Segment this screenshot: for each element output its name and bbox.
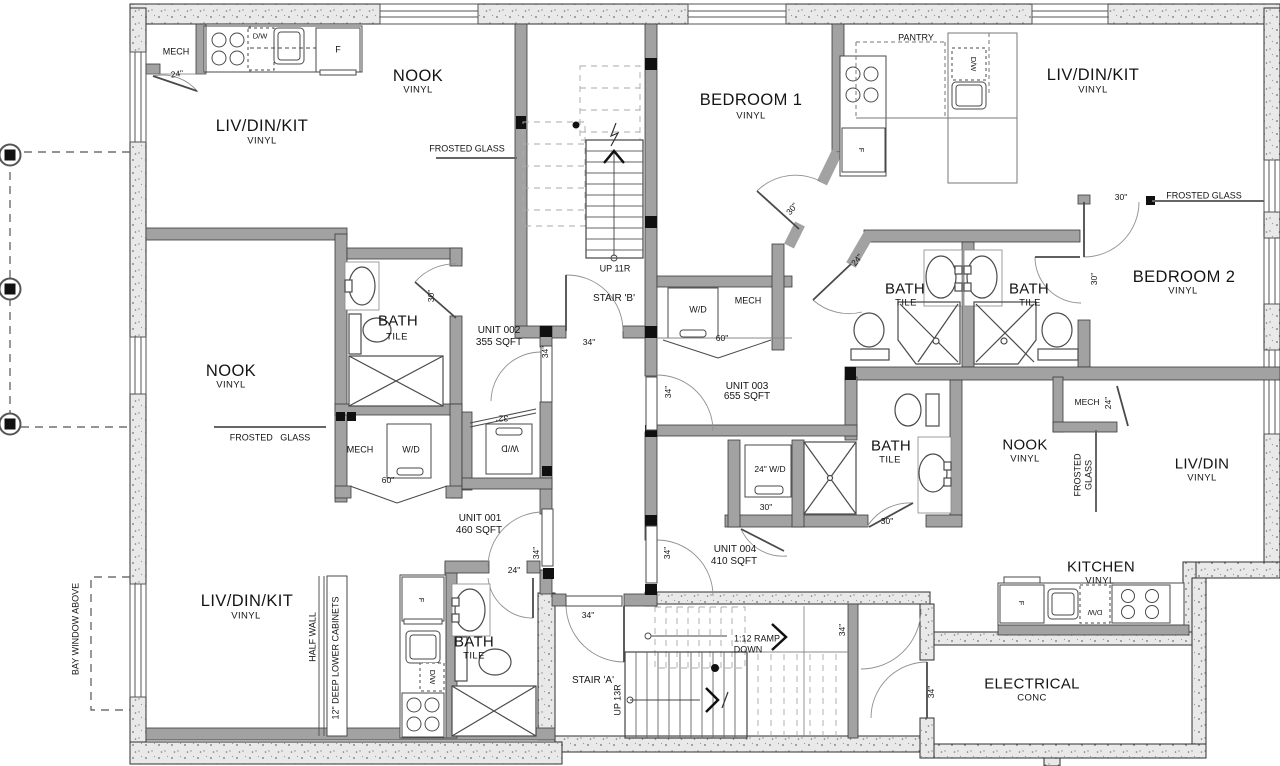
fridge-label-sw: F xyxy=(417,598,425,603)
note-frosted-glass-ne: FROSTED GLASS xyxy=(1166,192,1242,201)
dw-label-sw: D/W xyxy=(428,670,436,685)
room-label-nook-n: NOOK xyxy=(393,68,443,85)
room-finish-bath-002: TILE xyxy=(386,332,408,342)
note-frosted-glass-n: FROSTED GLASS xyxy=(429,145,505,154)
room-finish-bath-004: TILE xyxy=(879,455,901,465)
stair-b-label: STAIR 'B' xyxy=(593,294,635,304)
dim-34-unit003: 34" xyxy=(664,386,673,398)
dim-30-bedroom2: 30" xyxy=(1115,193,1127,202)
dim-30-wd24: 30" xyxy=(760,503,772,512)
dim-34-electrical: 34" xyxy=(927,686,936,698)
dim-32-closet: 32" xyxy=(496,414,508,423)
room-label-bath-002: BATH xyxy=(378,314,418,329)
room-label-bath-001: BATH xyxy=(454,635,494,650)
room-finish-bath-2: TILE xyxy=(1019,298,1041,308)
dim-30-bath002: 30" xyxy=(427,290,436,302)
dim-24-bath001: 24" xyxy=(508,566,520,575)
room-label-nook-w: NOOK xyxy=(206,363,256,380)
dim-34-unit002: 34" xyxy=(541,346,550,358)
mech-label-w: MECH xyxy=(347,446,374,455)
fridge-label-ne: F xyxy=(857,148,865,153)
dw-label-ne: D/W xyxy=(969,57,977,72)
room-label-bath-004: BATH xyxy=(871,439,911,454)
stair-a-ramp xyxy=(625,606,848,738)
room-label-livdin-e: LIV/DIN xyxy=(1175,457,1230,472)
dim-34-unit004: 34" xyxy=(663,547,672,559)
dim-34-stairb: 34" xyxy=(583,338,595,347)
dw-label-nw: D/W xyxy=(253,32,268,40)
unit-002-area: 355 SQFT xyxy=(476,338,522,348)
room-label-nook-e: NOOK xyxy=(1002,438,1047,453)
note-half-wall: HALF WALL xyxy=(309,612,318,662)
bay-window-markers xyxy=(0,145,130,711)
room-label-electrical: ELECTRICAL xyxy=(984,677,1080,692)
room-label-kitchen: KITCHEN xyxy=(1067,560,1135,575)
dim-24-mech-e: 24" xyxy=(1104,397,1113,409)
note-frosted-glass-w: FROSTED GLASS xyxy=(230,434,311,443)
dim-34-staira: 34" xyxy=(582,611,594,620)
ramp-label: 1:12 RAMP xyxy=(734,635,780,644)
unit-004-area: 410 SQFT xyxy=(711,557,757,567)
wd24-label: 24" W/D xyxy=(754,465,785,474)
room-finish-bedroom1: VINYL xyxy=(736,111,765,121)
note-frosted-vert: FROSTED xyxy=(1074,453,1083,496)
room-finish-bath-001: TILE xyxy=(463,651,485,661)
room-finish-bath-1: TILE xyxy=(895,298,917,308)
stair-b-run: UP 11R xyxy=(600,265,631,274)
wd-label-closet32: W/D xyxy=(501,444,519,453)
fridge-label-se: F xyxy=(1017,601,1025,606)
ramp-direction: DOWN xyxy=(734,646,763,655)
floor-plan-canvas: LIV/DIN/KIT VINYL NOOK VINYL BEDROOM 1 V… xyxy=(0,0,1280,766)
stair-a-label: STAIR 'A' xyxy=(572,676,614,686)
dim-60-closet-w: 60" xyxy=(382,476,394,485)
room-finish-nook-w: VINYL xyxy=(216,380,245,390)
floor-plan-drawing xyxy=(0,0,1280,766)
note-bay-window: BAY WINDOW ABOVE xyxy=(72,583,81,675)
dim-34-unit001: 34" xyxy=(532,547,541,559)
room-finish-livdinkit-nw: VINYL xyxy=(247,136,276,146)
fridge-label-nw: F xyxy=(335,46,341,55)
unit-002-name: UNIT 002 xyxy=(478,326,521,336)
unit-001-name: UNIT 001 xyxy=(459,514,502,524)
note-lower-cabinets: 12" DEEP LOWER CABINETS xyxy=(332,596,341,719)
room-label-livdinkit-sw: LIV/DIN/KIT xyxy=(201,593,293,610)
dim-30-bath2: 30" xyxy=(1090,273,1099,285)
dim-34-ramp: 34" xyxy=(838,624,847,636)
note-glass-vert: GLASS xyxy=(1085,460,1094,490)
mech-label-e: MECH xyxy=(1074,398,1099,407)
half-wall-lines xyxy=(319,576,324,736)
note-pantry: PANTRY xyxy=(898,34,934,43)
room-finish-nook-n: VINYL xyxy=(403,85,432,95)
room-finish-livdinkit-sw: VINYL xyxy=(231,611,260,621)
room-label-livdinkit-nw: LIV/DIN/KIT xyxy=(216,118,308,135)
mech-label-center: MECH xyxy=(735,297,762,306)
mech-label-nw: MECH xyxy=(163,48,190,57)
dim-24-mech-nw: 24" xyxy=(170,69,184,79)
room-label-bath-1: BATH xyxy=(885,282,925,297)
unit-001-area: 460 SQFT xyxy=(456,526,502,536)
room-finish-livdinkit-ne: VINYL xyxy=(1078,85,1107,95)
dim-60-closet-c: 60" xyxy=(716,334,728,343)
room-finish-bedroom2: VINYL xyxy=(1168,286,1197,296)
wd-label-center: W/D xyxy=(689,306,707,315)
dim-30-bath004: 30" xyxy=(881,517,893,526)
dw-label-se: D/W xyxy=(1088,608,1103,616)
room-finish-livdin-e: VINYL xyxy=(1187,473,1216,483)
room-label-livdinkit-ne: LIV/DIN/KIT xyxy=(1047,67,1139,84)
unit-004-name: UNIT 004 xyxy=(714,545,757,555)
unit-003-area: 655 SQFT xyxy=(724,392,770,402)
stair-b xyxy=(523,66,643,261)
room-label-bedroom2: BEDROOM 2 xyxy=(1133,269,1236,286)
room-finish-nook-e: VINYL xyxy=(1010,454,1039,464)
room-finish-electrical: CONC xyxy=(1017,693,1047,703)
stair-a-run: UP 13R xyxy=(614,684,623,715)
room-finish-kitchen: VINYL xyxy=(1085,576,1114,586)
wd-label-w: W/D xyxy=(402,446,420,455)
room-label-bath-2: BATH xyxy=(1009,282,1049,297)
room-label-bedroom1: BEDROOM 1 xyxy=(700,92,803,109)
